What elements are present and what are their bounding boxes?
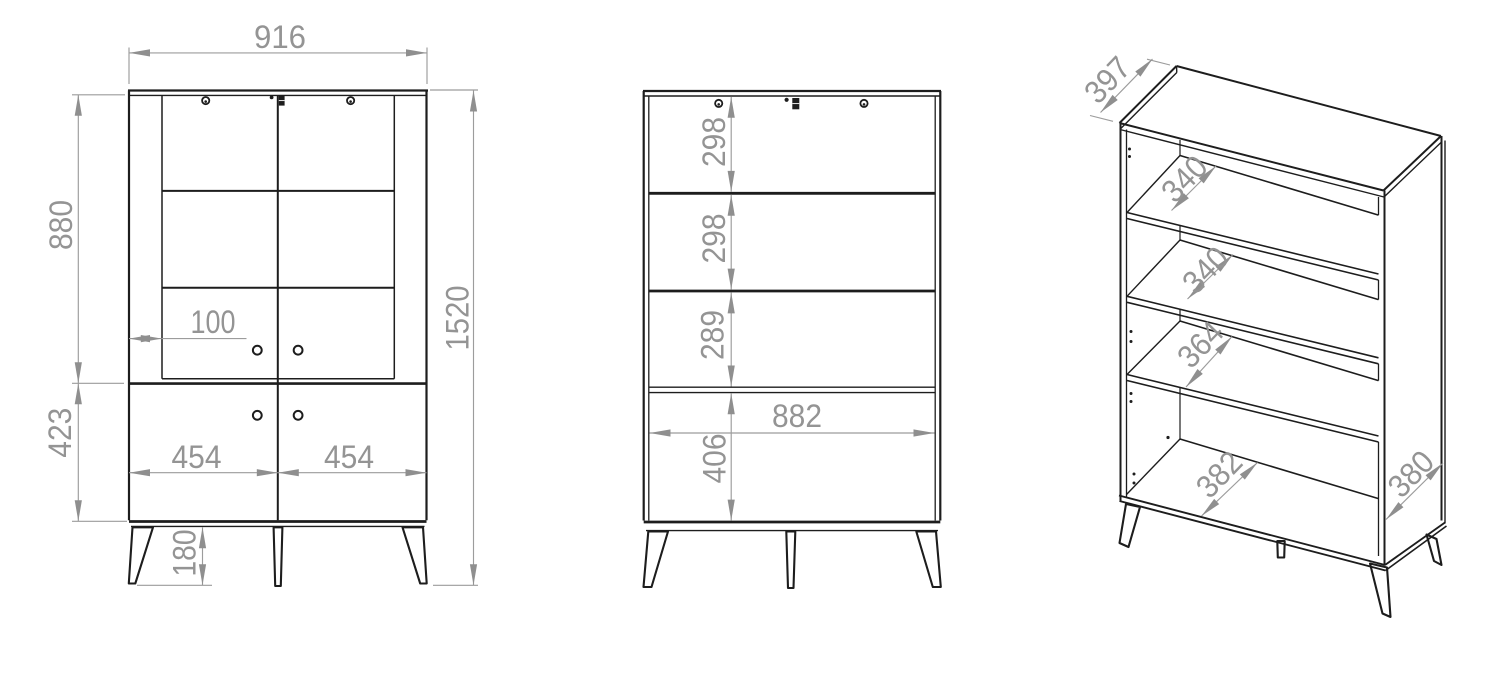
svg-text:298: 298 <box>696 214 732 264</box>
svg-text:882: 882 <box>772 398 822 434</box>
svg-text:423: 423 <box>42 408 78 458</box>
svg-text:916: 916 <box>254 19 306 55</box>
svg-text:454: 454 <box>172 439 222 475</box>
svg-text:1520: 1520 <box>440 286 476 351</box>
svg-text:289: 289 <box>695 310 731 360</box>
svg-text:406: 406 <box>697 434 733 484</box>
svg-text:180: 180 <box>167 530 203 577</box>
svg-text:298: 298 <box>696 117 732 167</box>
svg-text:880: 880 <box>43 200 79 250</box>
svg-text:100: 100 <box>191 304 236 340</box>
svg-text:454: 454 <box>324 439 374 475</box>
